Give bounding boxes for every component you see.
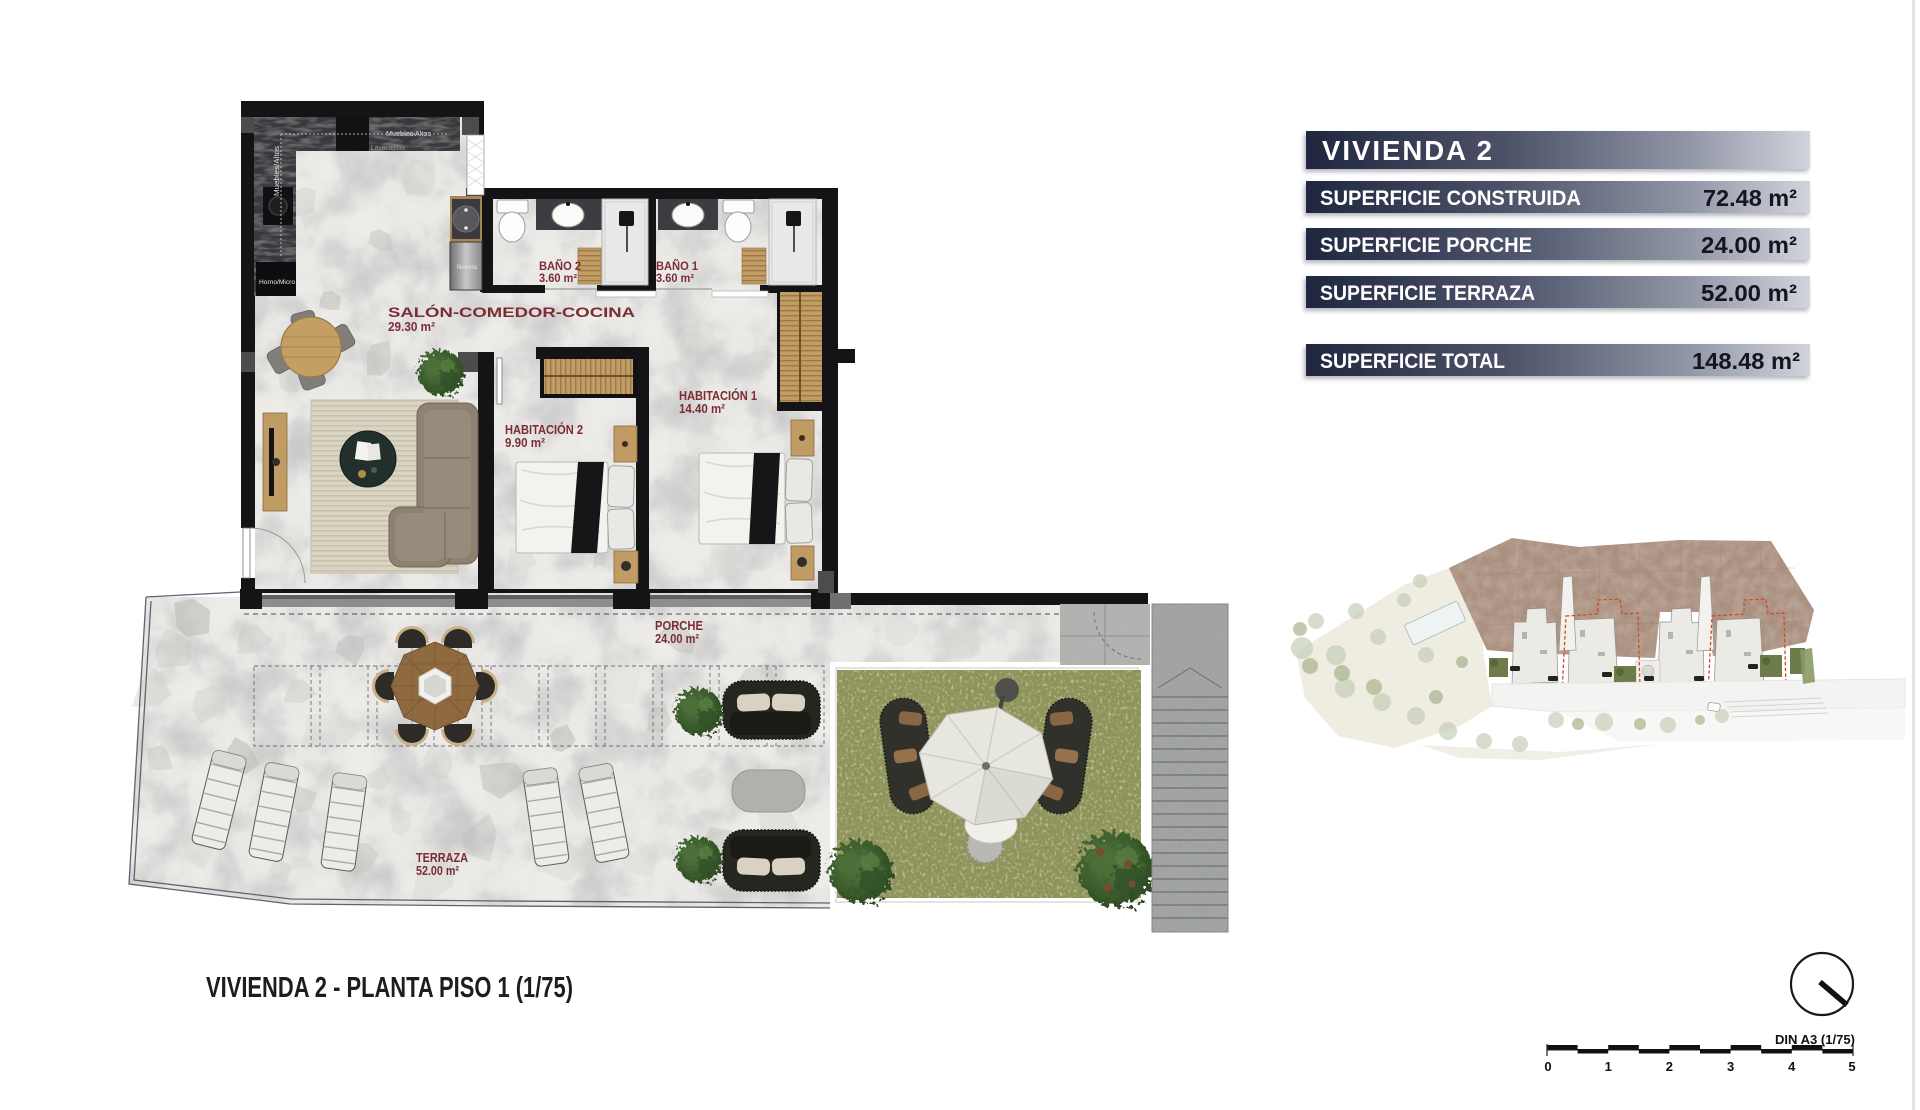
svg-text:29.30 m²: 29.30 m² bbox=[388, 320, 435, 334]
svg-text:PORCHE: PORCHE bbox=[655, 618, 703, 633]
svg-text:24.00 m²: 24.00 m² bbox=[655, 632, 699, 646]
svg-text:72.48 m²: 72.48 m² bbox=[1703, 185, 1797, 211]
svg-text:Muebles/Altos: Muebles/Altos bbox=[272, 146, 281, 196]
svg-text:9.90 m²: 9.90 m² bbox=[505, 436, 545, 450]
svg-text:1: 1 bbox=[1605, 1059, 1612, 1074]
svg-text:148.48 m²: 148.48 m² bbox=[1692, 348, 1800, 374]
svg-text:Nevera: Nevera bbox=[457, 264, 477, 271]
svg-text:HABITACIÓN 2: HABITACIÓN 2 bbox=[505, 422, 583, 437]
svg-text:2: 2 bbox=[1666, 1059, 1673, 1074]
svg-text:SUPERFICIE TERRAZA: SUPERFICIE TERRAZA bbox=[1320, 282, 1535, 305]
svg-text:SUPERFICIE CONSTRUIDA: SUPERFICIE CONSTRUIDA bbox=[1320, 187, 1581, 210]
svg-text:52.00 m²: 52.00 m² bbox=[416, 864, 459, 878]
svg-text:Lavavajillas: Lavavajillas bbox=[371, 143, 405, 152]
svg-text:4: 4 bbox=[1788, 1059, 1796, 1074]
svg-text:SUPERFICIE PORCHE: SUPERFICIE PORCHE bbox=[1320, 234, 1532, 257]
svg-text:3.60 m²: 3.60 m² bbox=[539, 273, 577, 285]
svg-text:TERRAZA: TERRAZA bbox=[416, 850, 469, 865]
svg-text:VIVIENDA 2 - PLANTA PISO 1 (1/: VIVIENDA 2 - PLANTA PISO 1 (1/75) bbox=[206, 972, 573, 1004]
svg-text:DIN A3 (1/75): DIN A3 (1/75) bbox=[1775, 1032, 1855, 1047]
svg-text:14.40 m²: 14.40 m² bbox=[679, 402, 725, 416]
svg-text:3: 3 bbox=[1727, 1059, 1734, 1074]
svg-text:Muebles Altos: Muebles Altos bbox=[386, 129, 431, 138]
svg-text:24.00 m²: 24.00 m² bbox=[1701, 232, 1797, 258]
svg-text:Horno/Micro: Horno/Micro bbox=[259, 279, 295, 286]
svg-text:5: 5 bbox=[1848, 1059, 1855, 1074]
svg-text:BAÑO 2: BAÑO 2 bbox=[539, 260, 581, 273]
svg-text:SALÓN-COMEDOR-COCINA: SALÓN-COMEDOR-COCINA bbox=[388, 305, 635, 320]
svg-text:SUPERFICIE TOTAL: SUPERFICIE TOTAL bbox=[1320, 350, 1505, 373]
svg-text:BAÑO 1: BAÑO 1 bbox=[656, 260, 699, 273]
svg-text:VIVIENDA 2: VIVIENDA 2 bbox=[1322, 135, 1494, 166]
svg-text:52.00 m²: 52.00 m² bbox=[1701, 280, 1797, 306]
svg-text:0: 0 bbox=[1544, 1059, 1551, 1074]
svg-text:3.60 m²: 3.60 m² bbox=[656, 273, 694, 285]
svg-text:HABITACIÓN 1: HABITACIÓN 1 bbox=[679, 388, 757, 403]
